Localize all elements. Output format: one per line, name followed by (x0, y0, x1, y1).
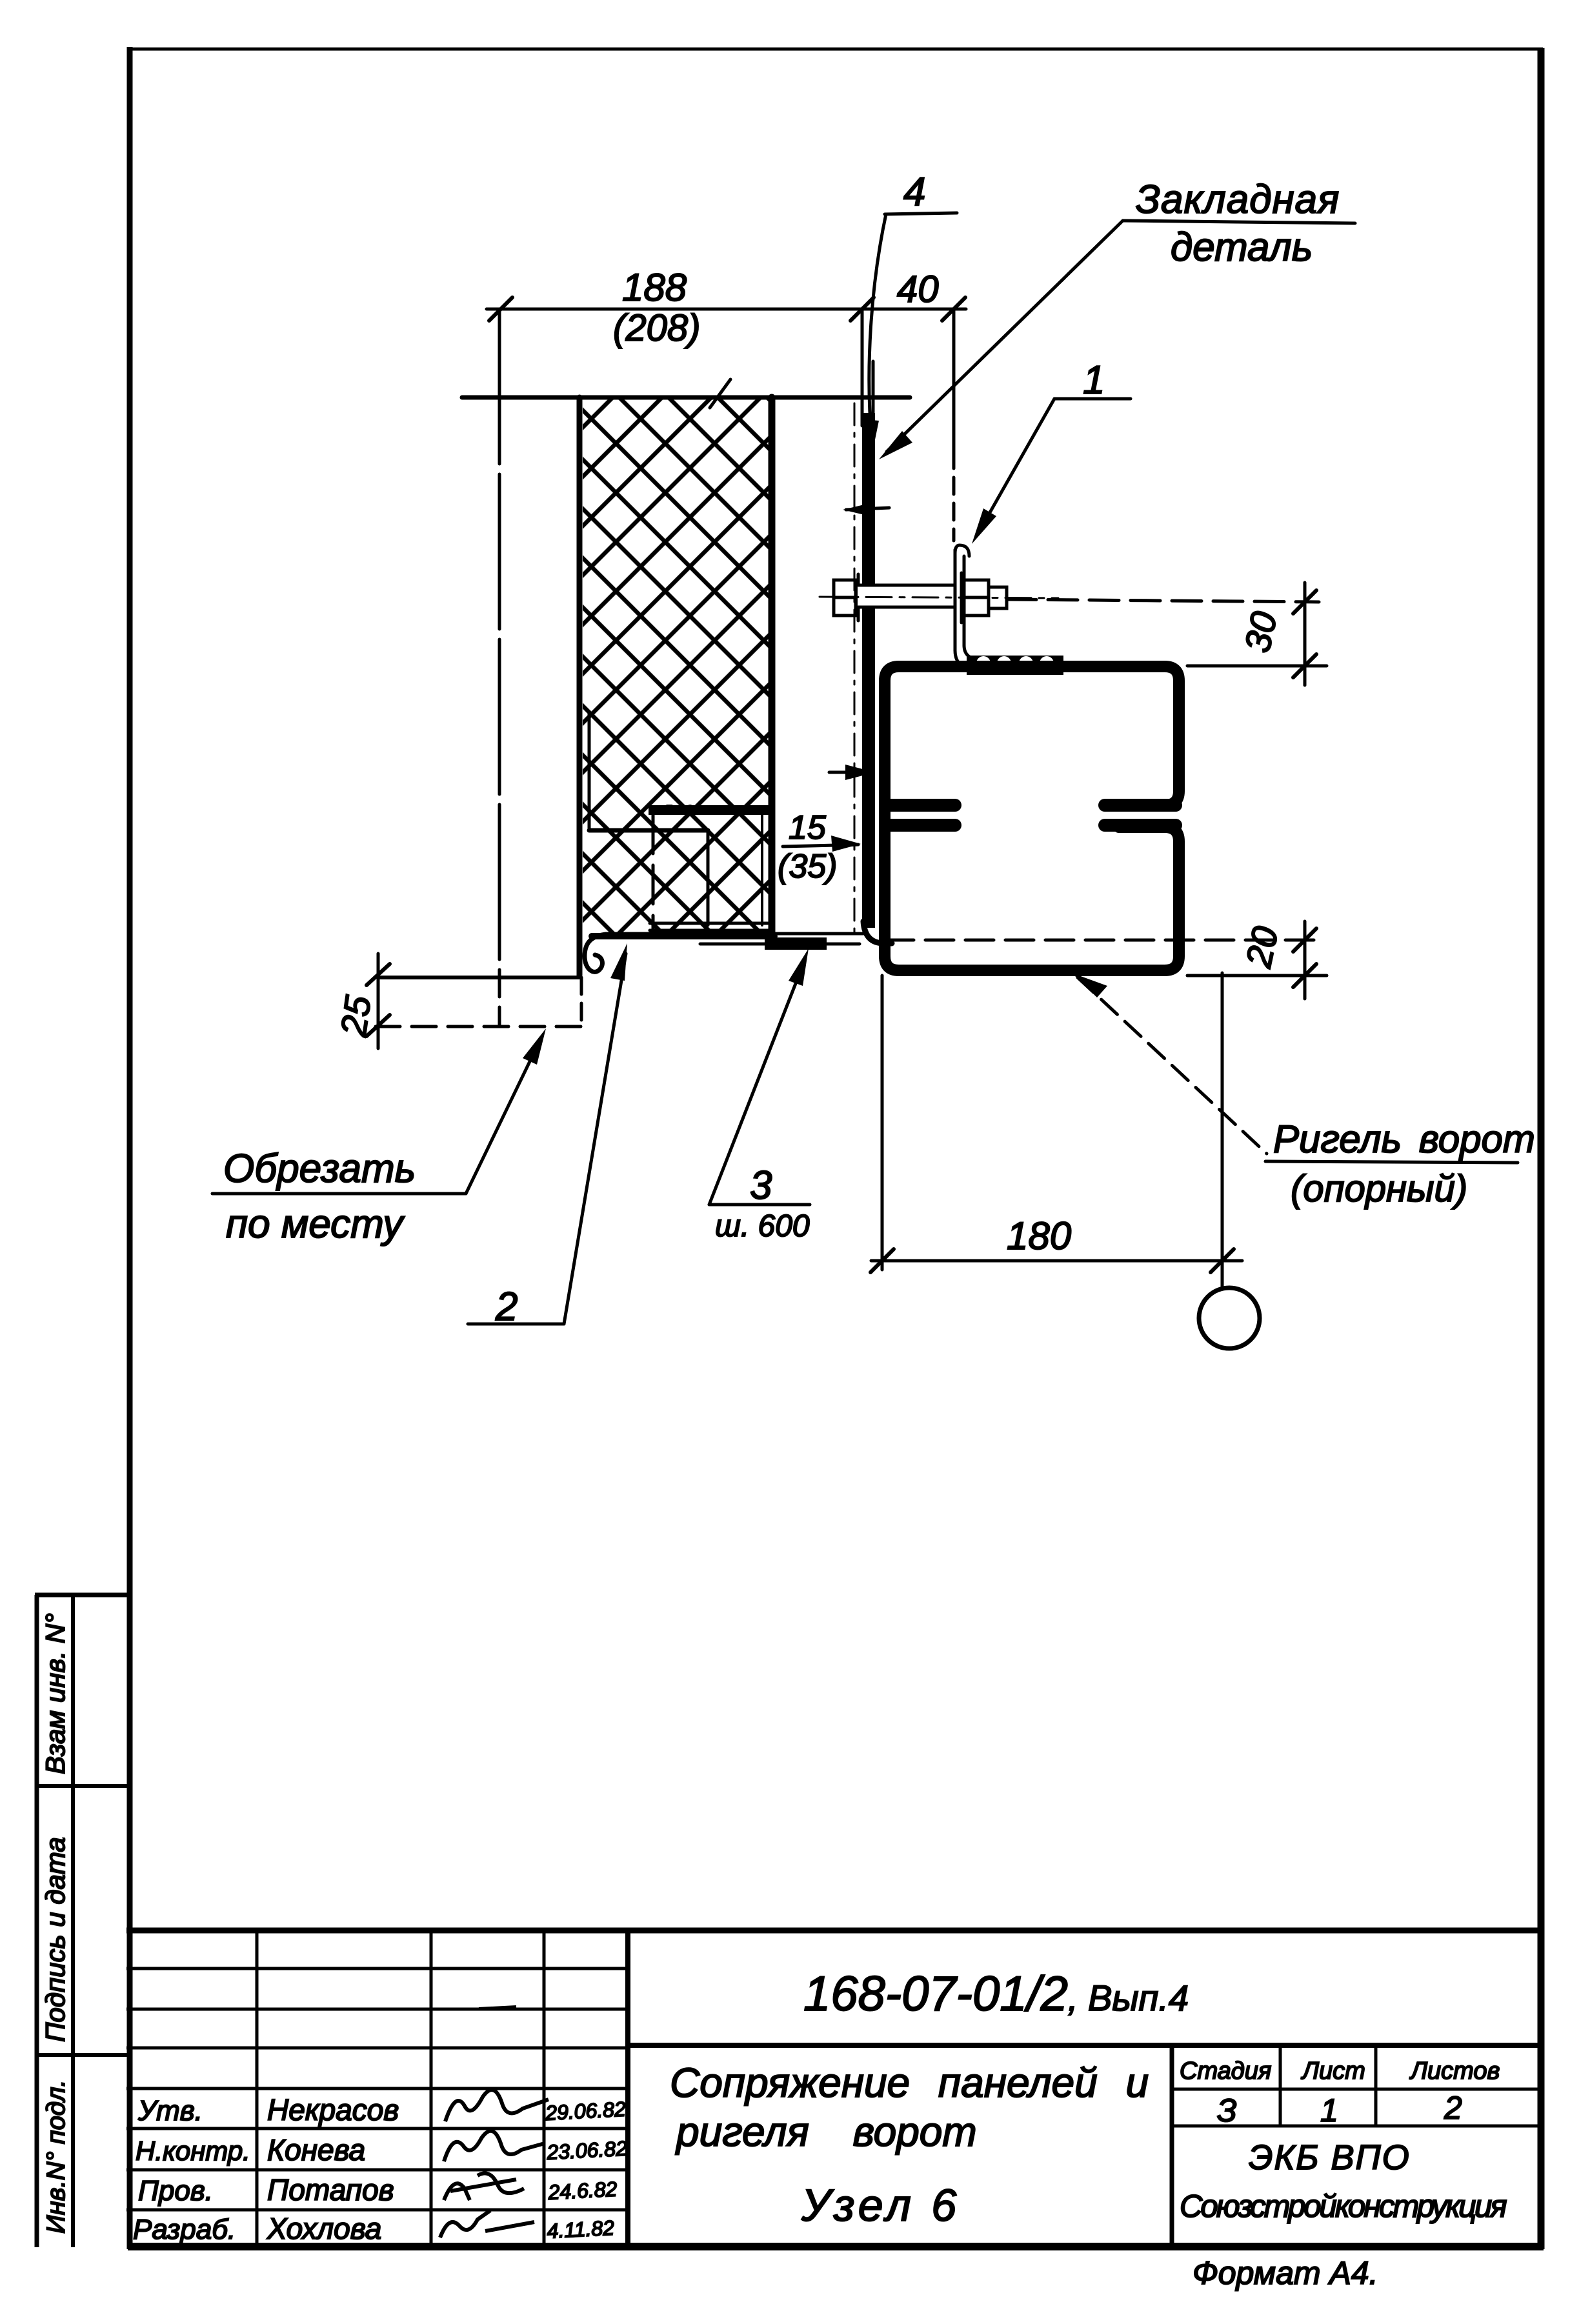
svg-text:Союзстройконструкция: Союзстройконструкция (1180, 2189, 1507, 2224)
svg-text:5х10: 5х10 (665, 803, 692, 817)
svg-text:30: 30 (1236, 608, 1285, 656)
svg-text:Лист: Лист (1300, 2058, 1365, 2085)
svg-text:15: 15 (789, 809, 827, 846)
svg-text:Ригель ворот: Ригель ворот (1273, 1117, 1535, 1161)
svg-text:Некрасов: Некрасов (267, 2093, 399, 2127)
svg-text:1: 1 (1320, 2092, 1338, 2129)
svg-text:Формат А4.: Формат А4. (1193, 2255, 1378, 2291)
svg-text:Стадия: Стадия (1180, 2058, 1271, 2085)
svg-text:ригеля ворот: ригеля ворот (675, 2109, 977, 2155)
svg-text:4.11.82: 4.11.82 (547, 2216, 615, 2243)
svg-text:23.06.82: 23.06.82 (545, 2137, 627, 2165)
svg-text:Хохлова: Хохлова (267, 2212, 381, 2245)
svg-text:188: 188 (622, 266, 687, 309)
svg-text:180: 180 (1007, 1214, 1071, 1257)
svg-text:Подпись и дата: Подпись и дата (40, 1837, 70, 2042)
svg-text:(35): (35) (778, 848, 837, 885)
svg-text:Сопряжение панелей и: Сопряжение панелей и (670, 2059, 1149, 2106)
svg-text:24.6.82: 24.6.82 (547, 2177, 618, 2204)
svg-text:Обрезать: Обрезать (223, 1147, 416, 1191)
svg-text:40: 40 (897, 268, 939, 310)
svg-text:20: 20 (1238, 923, 1286, 971)
svg-text:2: 2 (1444, 2090, 1462, 2126)
svg-text:Н.контр.: Н.контр. (136, 2136, 250, 2166)
svg-text:1: 1 (1083, 358, 1105, 403)
svg-text:(опорный): (опорный) (1291, 1168, 1467, 1210)
svg-text:Листов: Листов (1409, 2058, 1500, 2085)
svg-text:Закладная: Закладная (1136, 177, 1340, 222)
svg-text:Разраб.: Разраб. (133, 2214, 236, 2245)
svg-text:З: З (1217, 2092, 1237, 2129)
svg-text:25: 25 (332, 992, 378, 1039)
svg-text:Конева: Конева (267, 2133, 365, 2167)
svg-text:(208): (208) (613, 307, 700, 349)
svg-text:4: 4 (903, 170, 925, 214)
svg-text:3: 3 (750, 1163, 772, 1208)
svg-text:Утв.: Утв. (137, 2095, 203, 2127)
svg-text:ш. 600: ш. 600 (715, 1209, 810, 1243)
svg-text:по месту: по месту (226, 1202, 405, 1247)
svg-text:Потапов: Потапов (267, 2173, 394, 2207)
svg-text:168-07-01/2, Вып.4: 168-07-01/2, Вып.4 (803, 1967, 1189, 2021)
svg-text:Инв.N° подл.: Инв.N° подл. (42, 2079, 70, 2234)
svg-text:29.06.82: 29.06.82 (544, 2098, 626, 2125)
svg-text:деталь: деталь (1171, 225, 1313, 270)
svg-text:ЭКБ ВПО: ЭКБ ВПО (1249, 2138, 1411, 2177)
svg-text:Пров.: Пров. (138, 2175, 213, 2207)
svg-text:Взам инв. N°: Взам инв. N° (40, 1613, 70, 1774)
svg-text:Узел 6: Узел 6 (801, 2180, 960, 2230)
